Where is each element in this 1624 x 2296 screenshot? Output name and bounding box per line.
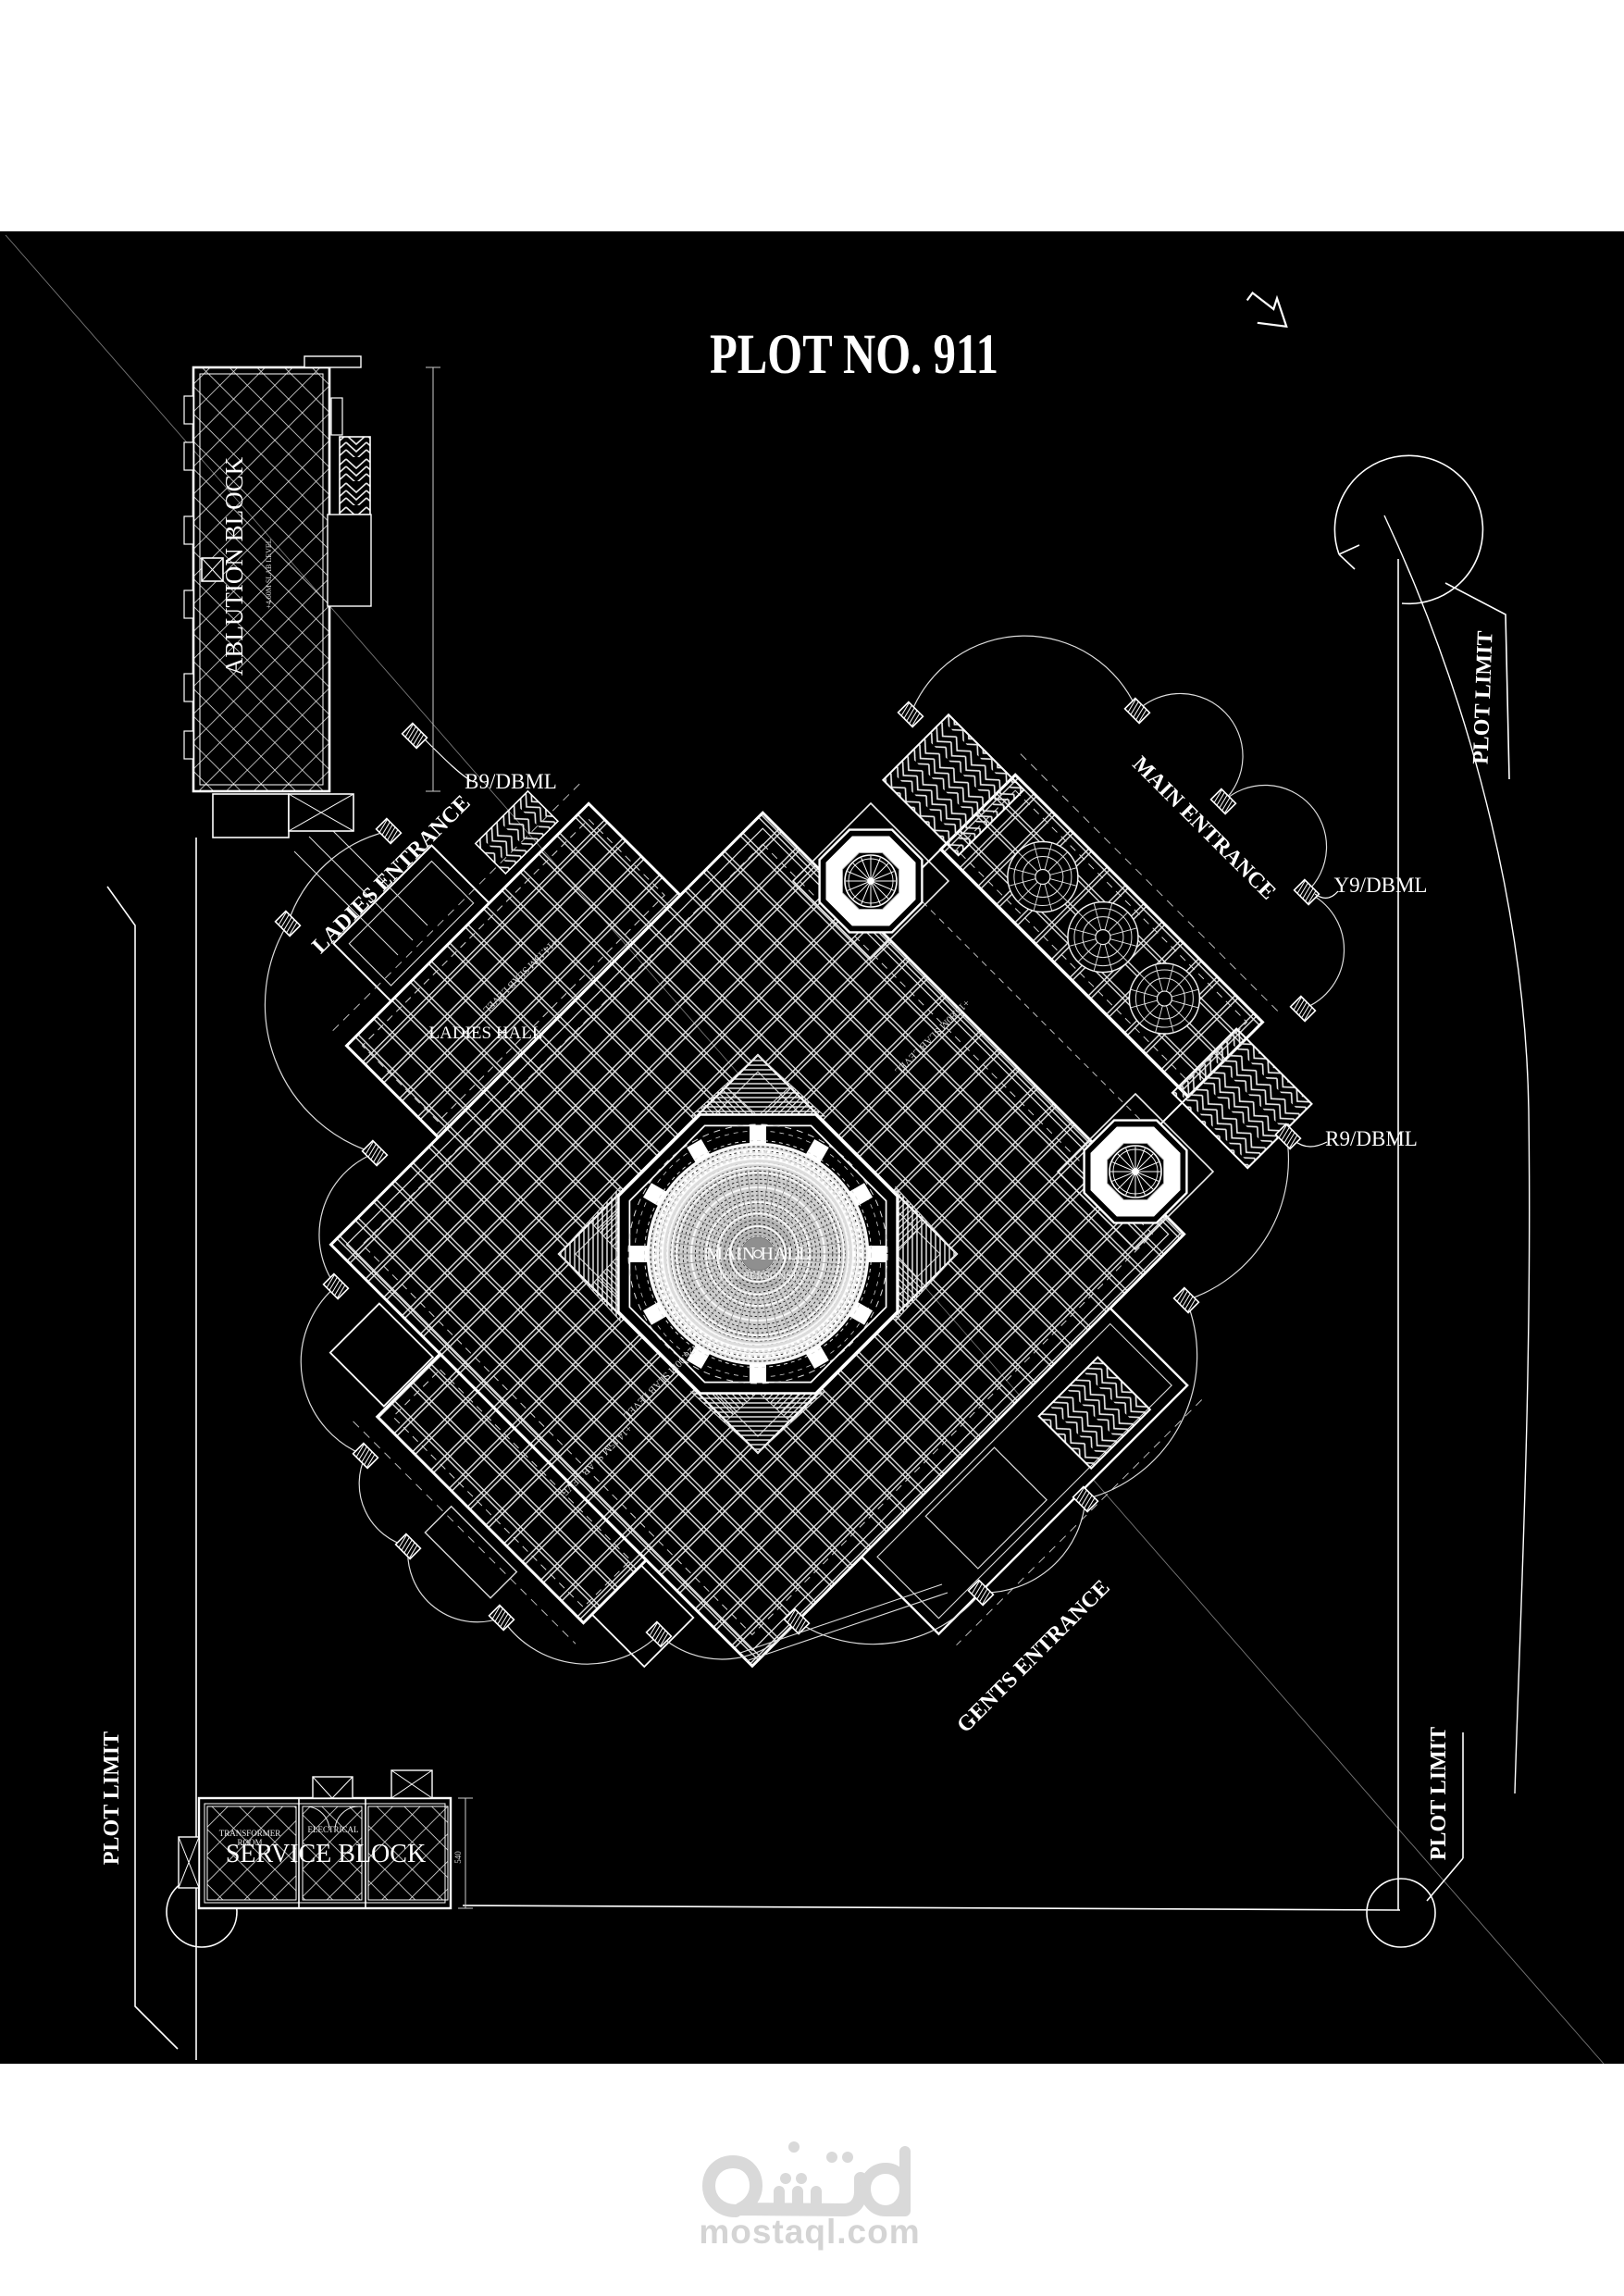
svg-text:ABLUTION BLOCK: ABLUTION BLOCK: [220, 456, 248, 676]
svg-text:540: 540: [453, 1851, 463, 1864]
svg-text:ELECTRICAL: ELECTRICAL: [308, 1825, 359, 1834]
svg-text:MAIN HALL: MAIN HALL: [706, 1244, 810, 1264]
svg-text:TRANSFORMER: TRANSFORMER: [219, 1829, 281, 1838]
svg-text:Y9/DBML: Y9/DBML: [1334, 874, 1428, 897]
svg-text:B9/DBML: B9/DBML: [465, 770, 557, 793]
svg-text:PLOT LIMIT: PLOT LIMIT: [100, 1731, 124, 1865]
svg-text:PLOT NO. 911: PLOT NO. 911: [710, 324, 998, 386]
svg-text:mostaql.com: mostaql.com: [699, 2213, 920, 2251]
svg-text:LADIES HALL: LADIES HALL: [429, 1024, 543, 1043]
svg-text:(500 PERSONS): (500 PERSONS): [720, 1269, 796, 1282]
svg-text:PLOT LIMIT: PLOT LIMIT: [1427, 1727, 1451, 1860]
svg-text:PLOT LIMIT: PLOT LIMIT: [1469, 630, 1497, 764]
svg-text:+4.60M SLAB LEVEL: +4.60M SLAB LEVEL: [265, 539, 273, 609]
svg-text:R9/DBML: R9/DBML: [1325, 1127, 1418, 1150]
svg-text:ROOM: ROOM: [237, 1838, 262, 1847]
